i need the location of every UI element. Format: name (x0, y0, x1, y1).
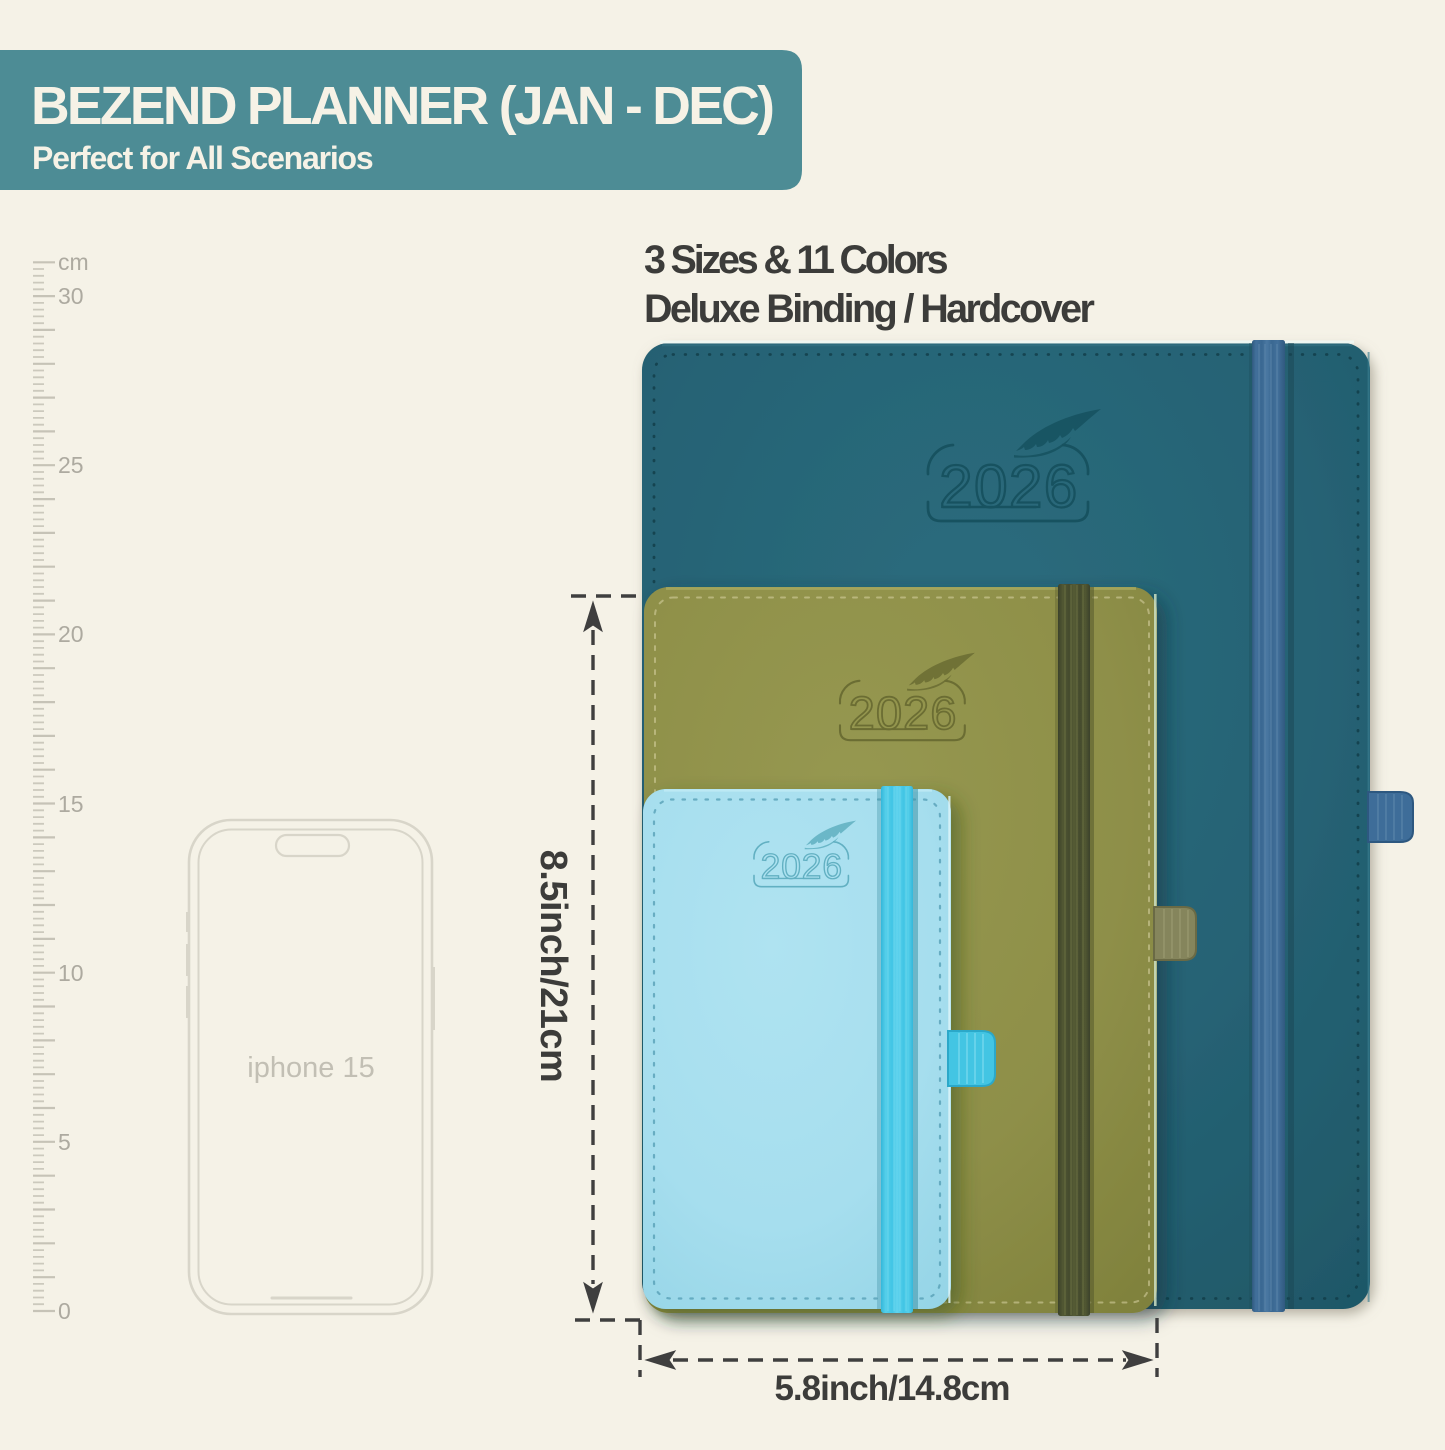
svg-text:0: 0 (58, 1298, 71, 1324)
svg-text:8.5inch/21cm: 8.5inch/21cm (532, 850, 574, 1083)
svg-text:iphone 15: iphone 15 (247, 1052, 374, 1084)
svg-text:3 Sizes & 11 Colors: 3 Sizes & 11 Colors (644, 238, 948, 282)
svg-text:Deluxe Binding / Hardcover: Deluxe Binding / Hardcover (644, 287, 1094, 331)
svg-text:25: 25 (58, 452, 84, 478)
svg-text:10: 10 (58, 960, 84, 986)
svg-text:Perfect for All Scenarios: Perfect for All Scenarios (32, 140, 373, 176)
svg-text:30: 30 (58, 283, 84, 309)
svg-text:cm: cm (58, 249, 89, 275)
svg-text:5.8inch/14.8cm: 5.8inch/14.8cm (774, 1369, 1009, 1408)
svg-text:BEZEND PLANNER (JAN - DEC): BEZEND PLANNER (JAN - DEC) (31, 77, 773, 136)
svg-text:2026: 2026 (849, 687, 958, 739)
svg-text:2026: 2026 (761, 846, 843, 886)
svg-text:15: 15 (58, 791, 84, 817)
svg-text:20: 20 (58, 621, 84, 647)
svg-text:2026: 2026 (939, 453, 1078, 520)
svg-text:5: 5 (58, 1129, 71, 1155)
